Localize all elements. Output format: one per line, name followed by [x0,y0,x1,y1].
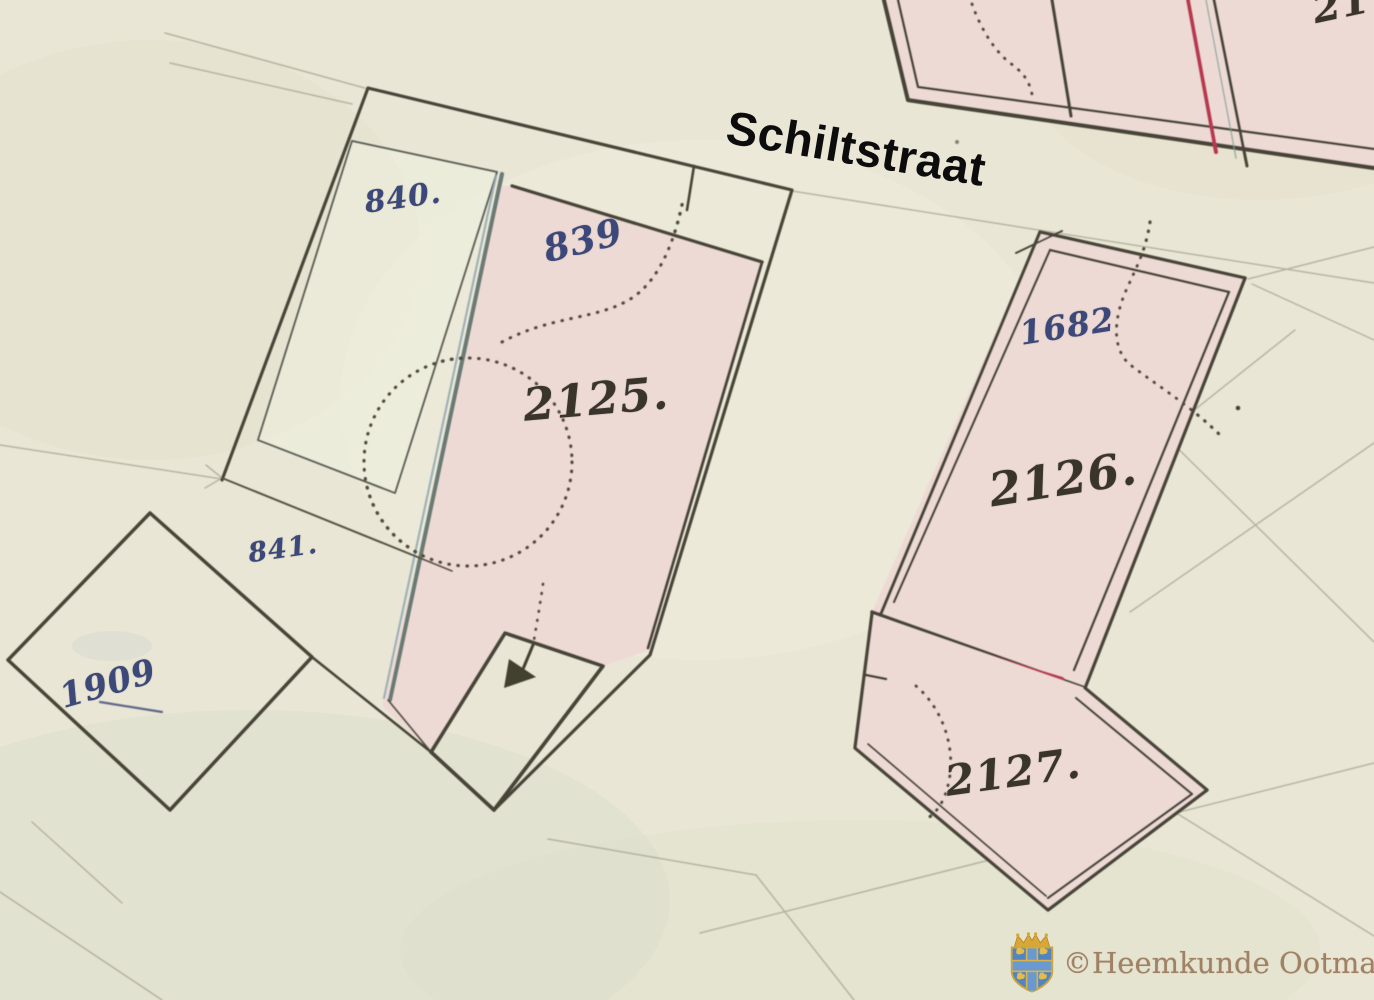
ootmarsum-crest-icon [1008,932,1056,994]
watermark-text: ©Heemkunde Ootmarsum [1063,946,1374,980]
cadastral-map-drawing [0,0,1374,1000]
cadastral-map-canvas: Schiltstraat 840. 839 2125. 1682 2126. 2… [0,0,1374,1000]
watermark: ©Heemkunde Ootmarsum [1008,932,1374,994]
